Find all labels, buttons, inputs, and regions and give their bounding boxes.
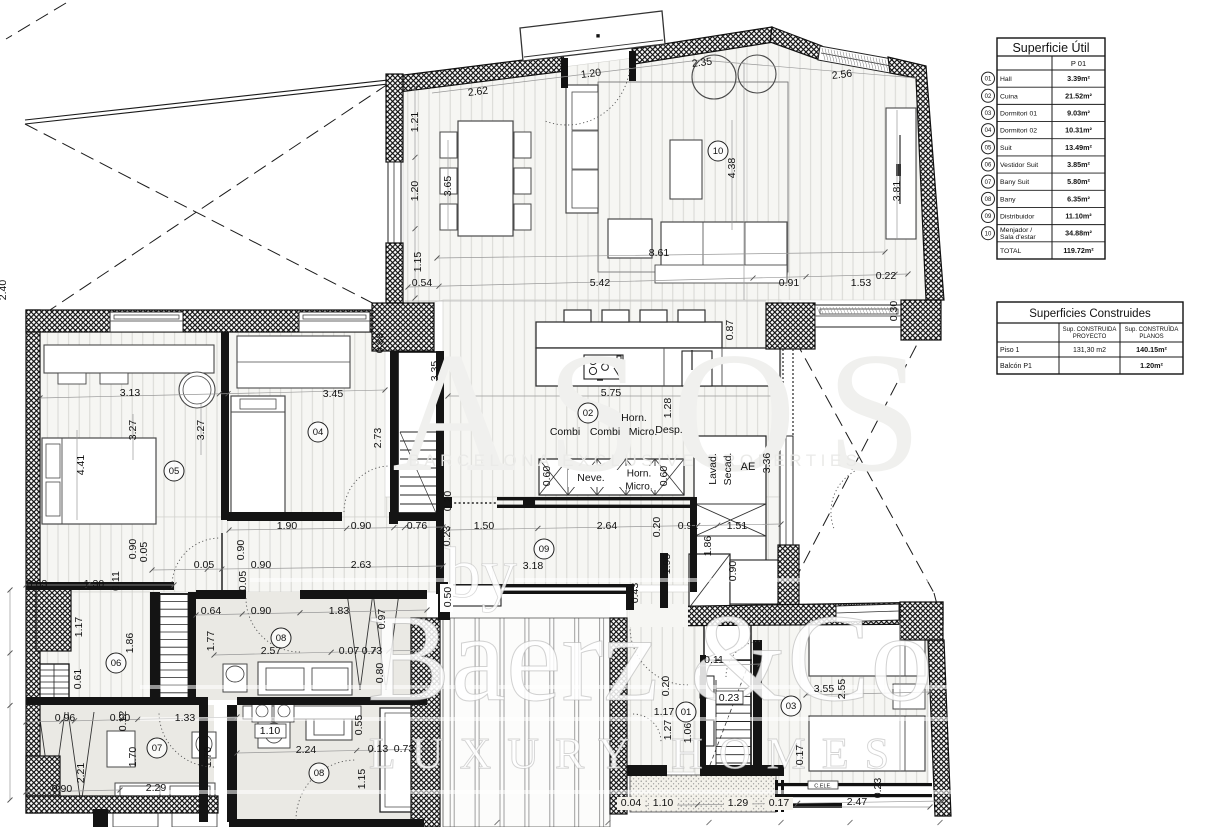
svg-text:Neve.: Neve. bbox=[577, 472, 604, 484]
svg-text:3.39m²: 3.39m² bbox=[1067, 74, 1090, 83]
svg-text:1.10: 1.10 bbox=[653, 797, 674, 809]
svg-text:119.72m²: 119.72m² bbox=[1063, 246, 1094, 255]
svg-text:Dormitori 02: Dormitori 02 bbox=[1000, 128, 1037, 135]
svg-text:06: 06 bbox=[985, 163, 992, 169]
svg-text:PLANOS: PLANOS bbox=[1139, 334, 1163, 340]
svg-text:07: 07 bbox=[152, 743, 163, 754]
svg-text:BARCELONA EXCLUSIVE PROPERTIES: BARCELONA EXCLUSIVE PROPERTIES bbox=[408, 451, 861, 470]
svg-text:5.42: 5.42 bbox=[590, 277, 611, 289]
svg-text:0.90: 0.90 bbox=[251, 559, 272, 571]
svg-text:1.33: 1.33 bbox=[175, 712, 196, 724]
svg-text:0.76: 0.76 bbox=[407, 520, 428, 532]
svg-text:0.50: 0.50 bbox=[442, 587, 454, 608]
svg-text:P 01: P 01 bbox=[1071, 59, 1086, 68]
svg-text:LUXURY HOMES: LUXURY HOMES bbox=[369, 729, 905, 778]
svg-text:1.30: 1.30 bbox=[84, 578, 105, 590]
svg-text:0.30: 0.30 bbox=[888, 301, 900, 322]
svg-text:Sup. CONSTRUIDA: Sup. CONSTRUIDA bbox=[1063, 327, 1117, 333]
svg-text:01: 01 bbox=[681, 707, 692, 718]
svg-text:0.96: 0.96 bbox=[55, 712, 76, 724]
svg-text:C.ELE.: C.ELE. bbox=[814, 784, 832, 790]
svg-text:Horn.: Horn. bbox=[621, 412, 647, 424]
svg-text:1.70: 1.70 bbox=[202, 747, 214, 768]
svg-text:0.05: 0.05 bbox=[237, 571, 249, 592]
svg-text:3.35: 3.35 bbox=[429, 361, 441, 382]
svg-text:1.50: 1.50 bbox=[474, 520, 495, 532]
svg-text:2.63: 2.63 bbox=[351, 559, 372, 571]
svg-text:0.11: 0.11 bbox=[110, 571, 122, 591]
svg-text:3.55: 3.55 bbox=[814, 683, 835, 695]
svg-text:2.40: 2.40 bbox=[0, 280, 9, 301]
svg-text:1.10: 1.10 bbox=[260, 725, 281, 737]
svg-text:09: 09 bbox=[539, 544, 550, 555]
svg-text:1.70: 1.70 bbox=[127, 747, 139, 768]
svg-text:Piso 1: Piso 1 bbox=[1000, 347, 1020, 354]
svg-text:01: 01 bbox=[985, 77, 992, 83]
svg-text:1.17: 1.17 bbox=[73, 617, 85, 638]
svg-text:1.20: 1.20 bbox=[580, 67, 602, 81]
svg-text:0.23: 0.23 bbox=[719, 692, 740, 704]
svg-text:0.90: 0.90 bbox=[251, 605, 272, 617]
svg-text:1.86: 1.86 bbox=[124, 633, 136, 654]
svg-text:Superficie Útil: Superficie Útil bbox=[1012, 40, 1089, 55]
svg-text:2.56: 2.56 bbox=[831, 68, 853, 82]
svg-text:1.86: 1.86 bbox=[702, 536, 714, 557]
svg-text:3.81: 3.81 bbox=[891, 181, 903, 202]
svg-text:Combi: Combi bbox=[590, 426, 620, 438]
svg-text:0.90: 0.90 bbox=[351, 520, 372, 532]
svg-text:10: 10 bbox=[985, 231, 992, 237]
svg-text:0.60: 0.60 bbox=[541, 466, 553, 487]
svg-text:02: 02 bbox=[583, 408, 594, 419]
svg-text:0.05: 0.05 bbox=[194, 559, 215, 571]
svg-text:0.64: 0.64 bbox=[201, 605, 222, 617]
svg-text:1.27: 1.27 bbox=[662, 720, 674, 741]
svg-text:Menjador /: Menjador / bbox=[1000, 227, 1032, 234]
svg-text:9.03m²: 9.03m² bbox=[1067, 108, 1090, 117]
svg-text:1.17: 1.17 bbox=[654, 706, 675, 718]
svg-text:■: ■ bbox=[596, 33, 600, 40]
svg-text:03: 03 bbox=[985, 111, 992, 117]
svg-text:0.17: 0.17 bbox=[769, 797, 790, 809]
svg-text:11.10m²: 11.10m² bbox=[1065, 212, 1092, 221]
svg-text:Sala d'estar: Sala d'estar bbox=[1000, 234, 1036, 241]
svg-text:0.63: 0.63 bbox=[27, 578, 48, 590]
svg-text:10.31m²: 10.31m² bbox=[1065, 126, 1092, 135]
svg-text:TOTAL: TOTAL bbox=[1000, 248, 1021, 255]
svg-text:08: 08 bbox=[276, 633, 287, 644]
svg-text:03: 03 bbox=[786, 701, 797, 712]
svg-text:0.22: 0.22 bbox=[876, 270, 897, 282]
svg-text:0.13: 0.13 bbox=[368, 743, 389, 755]
svg-text:1.06: 1.06 bbox=[682, 723, 694, 744]
svg-text:21.52m²: 21.52m² bbox=[1065, 91, 1092, 100]
svg-text:Desp.: Desp. bbox=[655, 424, 682, 436]
svg-text:09: 09 bbox=[985, 214, 992, 220]
svg-text:1.20m²: 1.20m² bbox=[1140, 361, 1163, 370]
svg-text:0.23: 0.23 bbox=[441, 526, 453, 547]
svg-text:2.21: 2.21 bbox=[75, 763, 87, 784]
svg-text:Micro.: Micro. bbox=[625, 482, 652, 493]
svg-text:Vestidor Suit: Vestidor Suit bbox=[1000, 162, 1038, 169]
svg-text:1.15: 1.15 bbox=[356, 769, 368, 790]
svg-text:Micro.: Micro. bbox=[629, 426, 658, 438]
svg-text:0.73: 0.73 bbox=[394, 743, 415, 755]
svg-text:1.90: 1.90 bbox=[277, 520, 298, 532]
svg-text:0.90: 0.90 bbox=[235, 540, 247, 561]
svg-text:1.51: 1.51 bbox=[727, 520, 748, 532]
svg-text:34.88m²: 34.88m² bbox=[1065, 229, 1092, 238]
svg-text:07: 07 bbox=[985, 180, 992, 186]
svg-text:3.27: 3.27 bbox=[127, 420, 139, 441]
svg-text:2.62: 2.62 bbox=[467, 85, 489, 99]
svg-text:0.20: 0.20 bbox=[651, 517, 663, 538]
svg-text:Hall: Hall bbox=[1000, 76, 1012, 83]
svg-text:1.77: 1.77 bbox=[205, 631, 217, 652]
svg-text:2.47: 2.47 bbox=[847, 796, 868, 808]
svg-text:1.21: 1.21 bbox=[409, 112, 421, 133]
svg-text:2.35: 2.35 bbox=[691, 56, 713, 70]
svg-text:2.55: 2.55 bbox=[836, 679, 848, 700]
svg-text:3.85m²: 3.85m² bbox=[1067, 160, 1090, 169]
svg-text:0.60: 0.60 bbox=[658, 466, 670, 487]
svg-text:2.64: 2.64 bbox=[597, 520, 618, 532]
svg-text:0.12: 0.12 bbox=[117, 711, 129, 732]
svg-text:4.38: 4.38 bbox=[726, 158, 738, 179]
svg-text:Superficies Construides: Superficies Construides bbox=[1029, 308, 1151, 320]
svg-text:3.27: 3.27 bbox=[195, 420, 207, 441]
svg-text:0.91: 0.91 bbox=[779, 277, 800, 289]
svg-text:0.61: 0.61 bbox=[72, 669, 84, 690]
svg-text:0.04: 0.04 bbox=[621, 797, 642, 809]
svg-text:0.90: 0.90 bbox=[52, 783, 73, 795]
svg-text:0.43: 0.43 bbox=[629, 583, 641, 604]
svg-text:5.80m²: 5.80m² bbox=[1067, 177, 1090, 186]
svg-text:1.15: 1.15 bbox=[412, 252, 424, 273]
svg-text:3.65: 3.65 bbox=[442, 176, 454, 197]
svg-text:3.36: 3.36 bbox=[761, 453, 773, 474]
svg-text:0.91: 0.91 bbox=[678, 520, 699, 532]
svg-text:05: 05 bbox=[985, 145, 992, 151]
svg-text:1.53: 1.53 bbox=[851, 277, 872, 289]
svg-text:8.61: 8.61 bbox=[649, 247, 670, 259]
svg-text:06: 06 bbox=[111, 658, 122, 669]
svg-text:Horn.: Horn. bbox=[627, 469, 651, 480]
svg-text:0.73: 0.73 bbox=[362, 645, 383, 657]
svg-text:02: 02 bbox=[985, 94, 992, 100]
svg-text:131,30 m2: 131,30 m2 bbox=[1073, 347, 1106, 354]
svg-text:0.87: 0.87 bbox=[724, 320, 736, 341]
svg-text:Bany: Bany bbox=[1000, 196, 1016, 203]
svg-text:04: 04 bbox=[985, 128, 992, 134]
svg-text:0.05: 0.05 bbox=[138, 542, 150, 563]
svg-text:1.28: 1.28 bbox=[662, 398, 674, 419]
svg-text:PROYECTO: PROYECTO bbox=[1073, 334, 1107, 340]
svg-text:0.23: 0.23 bbox=[872, 778, 884, 799]
svg-text:Suit: Suit bbox=[1000, 145, 1012, 152]
svg-text:13.49m²: 13.49m² bbox=[1065, 143, 1092, 152]
svg-text:0.07: 0.07 bbox=[339, 645, 360, 657]
svg-text:1.29: 1.29 bbox=[728, 797, 749, 809]
svg-text:3.13: 3.13 bbox=[120, 387, 141, 399]
svg-text:0.11: 0.11 bbox=[704, 654, 724, 666]
svg-text:Bany Suit: Bany Suit bbox=[1000, 179, 1029, 186]
svg-text:3.45: 3.45 bbox=[323, 388, 344, 400]
svg-text:Distribuidor: Distribuidor bbox=[1000, 214, 1035, 221]
svg-text:0.33: 0.33 bbox=[374, 333, 386, 354]
svg-text:2.24: 2.24 bbox=[296, 744, 317, 756]
svg-text:0.55: 0.55 bbox=[353, 715, 365, 736]
svg-text:AE: AE bbox=[741, 461, 756, 473]
svg-text:0.20: 0.20 bbox=[660, 676, 672, 697]
svg-text:Cuina: Cuina bbox=[1000, 93, 1018, 100]
svg-text:Dormitori 01: Dormitori 01 bbox=[1000, 110, 1037, 117]
svg-text:5.75: 5.75 bbox=[601, 387, 622, 399]
svg-text:Combi: Combi bbox=[550, 426, 580, 438]
svg-text:0.20: 0.20 bbox=[442, 491, 454, 512]
svg-text:4.41: 4.41 bbox=[75, 455, 87, 476]
svg-text:Secad.: Secad. bbox=[722, 453, 734, 486]
svg-text:0.17: 0.17 bbox=[794, 745, 806, 766]
svg-text:0.97: 0.97 bbox=[376, 609, 388, 630]
svg-text:Balcón P1: Balcón P1 bbox=[1000, 363, 1032, 370]
svg-text:04: 04 bbox=[313, 427, 324, 438]
svg-text:08: 08 bbox=[985, 197, 992, 203]
svg-text:1.95: 1.95 bbox=[661, 554, 673, 575]
svg-text:Sup. CONSTRUÏDA: Sup. CONSTRUÏDA bbox=[1125, 326, 1179, 333]
svg-text:2.73: 2.73 bbox=[372, 428, 384, 449]
svg-text:1.83: 1.83 bbox=[329, 605, 350, 617]
svg-text:6.35m²: 6.35m² bbox=[1067, 194, 1090, 203]
svg-text:Lavad.: Lavad. bbox=[707, 453, 719, 485]
svg-text:2.29: 2.29 bbox=[146, 782, 167, 794]
svg-text:0.80: 0.80 bbox=[374, 663, 386, 684]
svg-text:08: 08 bbox=[314, 768, 325, 779]
svg-text:05: 05 bbox=[169, 466, 180, 477]
svg-text:0.90: 0.90 bbox=[727, 561, 739, 582]
svg-text:0.54: 0.54 bbox=[412, 277, 433, 289]
svg-text:1.20: 1.20 bbox=[409, 181, 421, 202]
svg-text:10: 10 bbox=[713, 146, 724, 157]
svg-text:140.15m²: 140.15m² bbox=[1136, 345, 1167, 354]
svg-text:3.18: 3.18 bbox=[523, 560, 544, 572]
